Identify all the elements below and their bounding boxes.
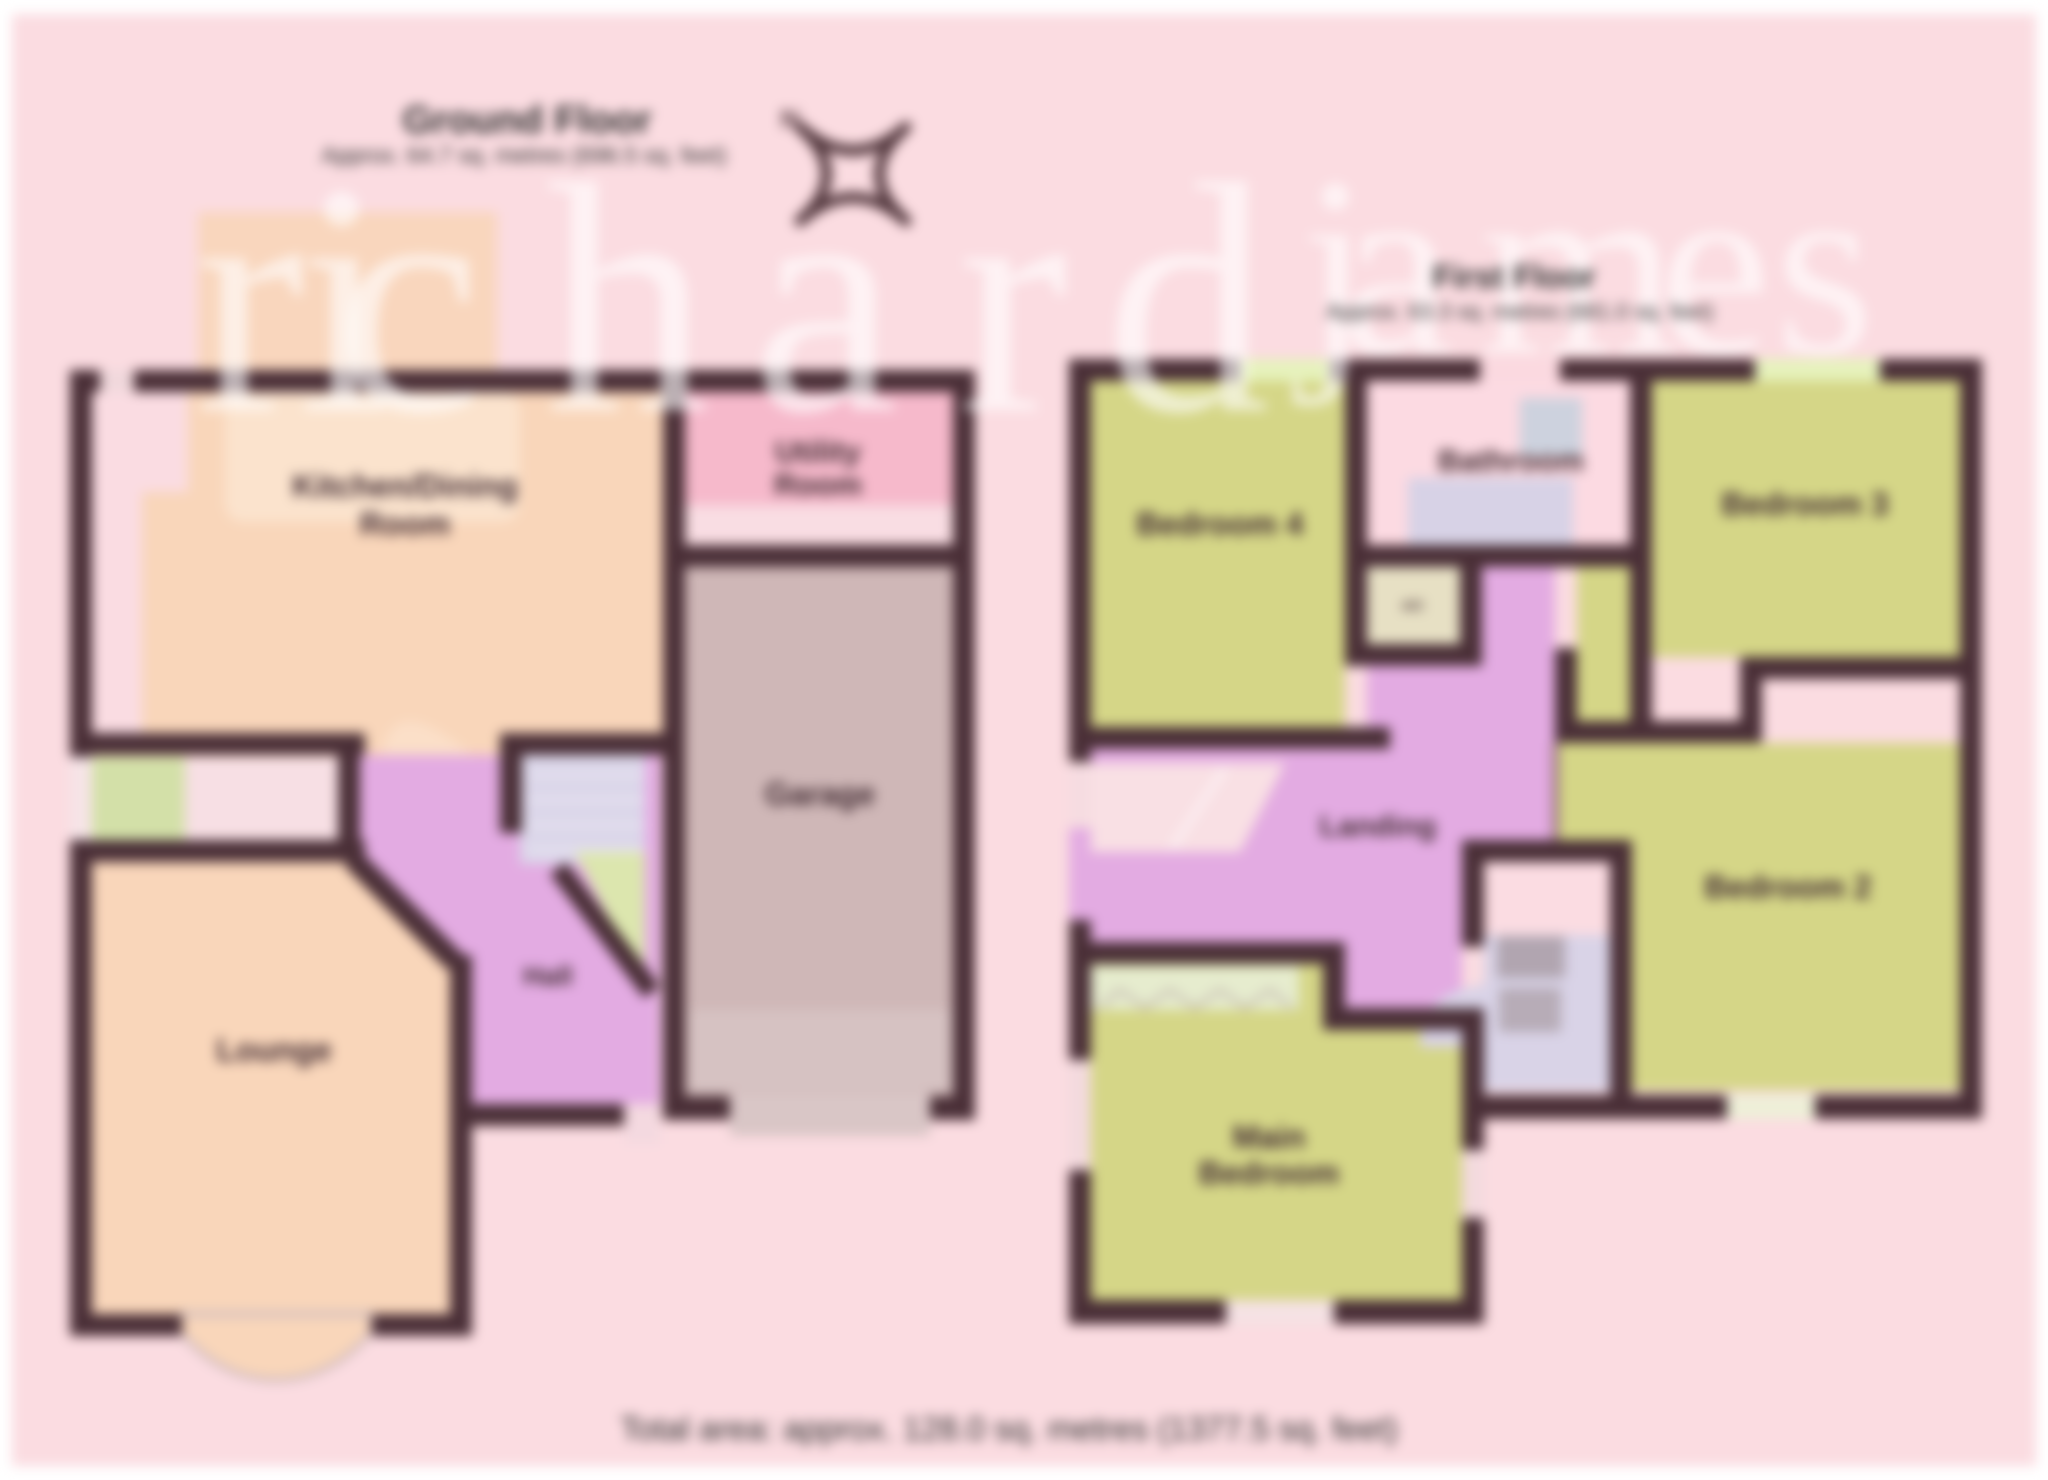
svg-text:Ground Floor: Ground Floor — [402, 99, 651, 142]
svg-text:Bedroom 3: Bedroom 3 — [1721, 486, 1888, 522]
svg-text:Utility: Utility — [775, 434, 862, 469]
svg-text:Room: Room — [360, 506, 451, 542]
svg-text:Total area: approx. 128.0 sq.: Total area: approx. 128.0 sq. metres (13… — [620, 1410, 1398, 1447]
svg-text:Kitchen/Dining: Kitchen/Dining — [292, 468, 518, 504]
svg-text:Bedroom: Bedroom — [1199, 1155, 1339, 1191]
svg-text:Room: Room — [774, 467, 862, 502]
svg-text:Hall: Hall — [523, 961, 573, 991]
svg-text:Garage: Garage — [765, 776, 875, 812]
svg-text:Bathroom: Bathroom — [1438, 443, 1584, 478]
svg-text:A/C: A/C — [1402, 598, 1425, 613]
svg-text:Bedroom 4: Bedroom 4 — [1136, 506, 1303, 542]
svg-text:Main: Main — [1233, 1119, 1306, 1155]
svg-text:Bedroom 2: Bedroom 2 — [1704, 869, 1871, 905]
svg-text:Landing: Landing — [1320, 810, 1437, 843]
svg-text:Approx. 63.3 sq. metres (681.0: Approx. 63.3 sq. metres (681.0 sq. feet) — [1326, 299, 1714, 324]
svg-text:First Floor: First Floor — [1432, 258, 1595, 295]
svg-text:Lounge: Lounge — [216, 1032, 332, 1068]
svg-text:Approx. 64.7 sq. metres (696.5: Approx. 64.7 sq. metres (696.5 sq. feet) — [321, 142, 726, 168]
